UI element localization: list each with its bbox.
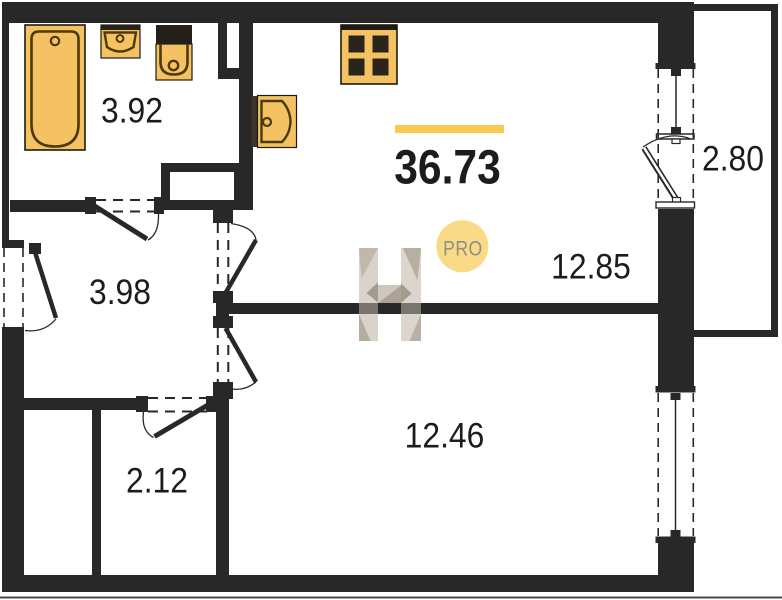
svg-text:12.46: 12.46 [405,417,485,456]
svg-text:PRO: PRO [443,237,482,261]
svg-text:12.85: 12.85 [551,248,631,287]
svg-text:2.12: 2.12 [126,462,188,501]
svg-text:2.80: 2.80 [702,140,764,179]
svg-text:3.92: 3.92 [101,92,163,131]
svg-text:3.98: 3.98 [89,274,151,313]
svg-text:36.73: 36.73 [394,140,501,194]
